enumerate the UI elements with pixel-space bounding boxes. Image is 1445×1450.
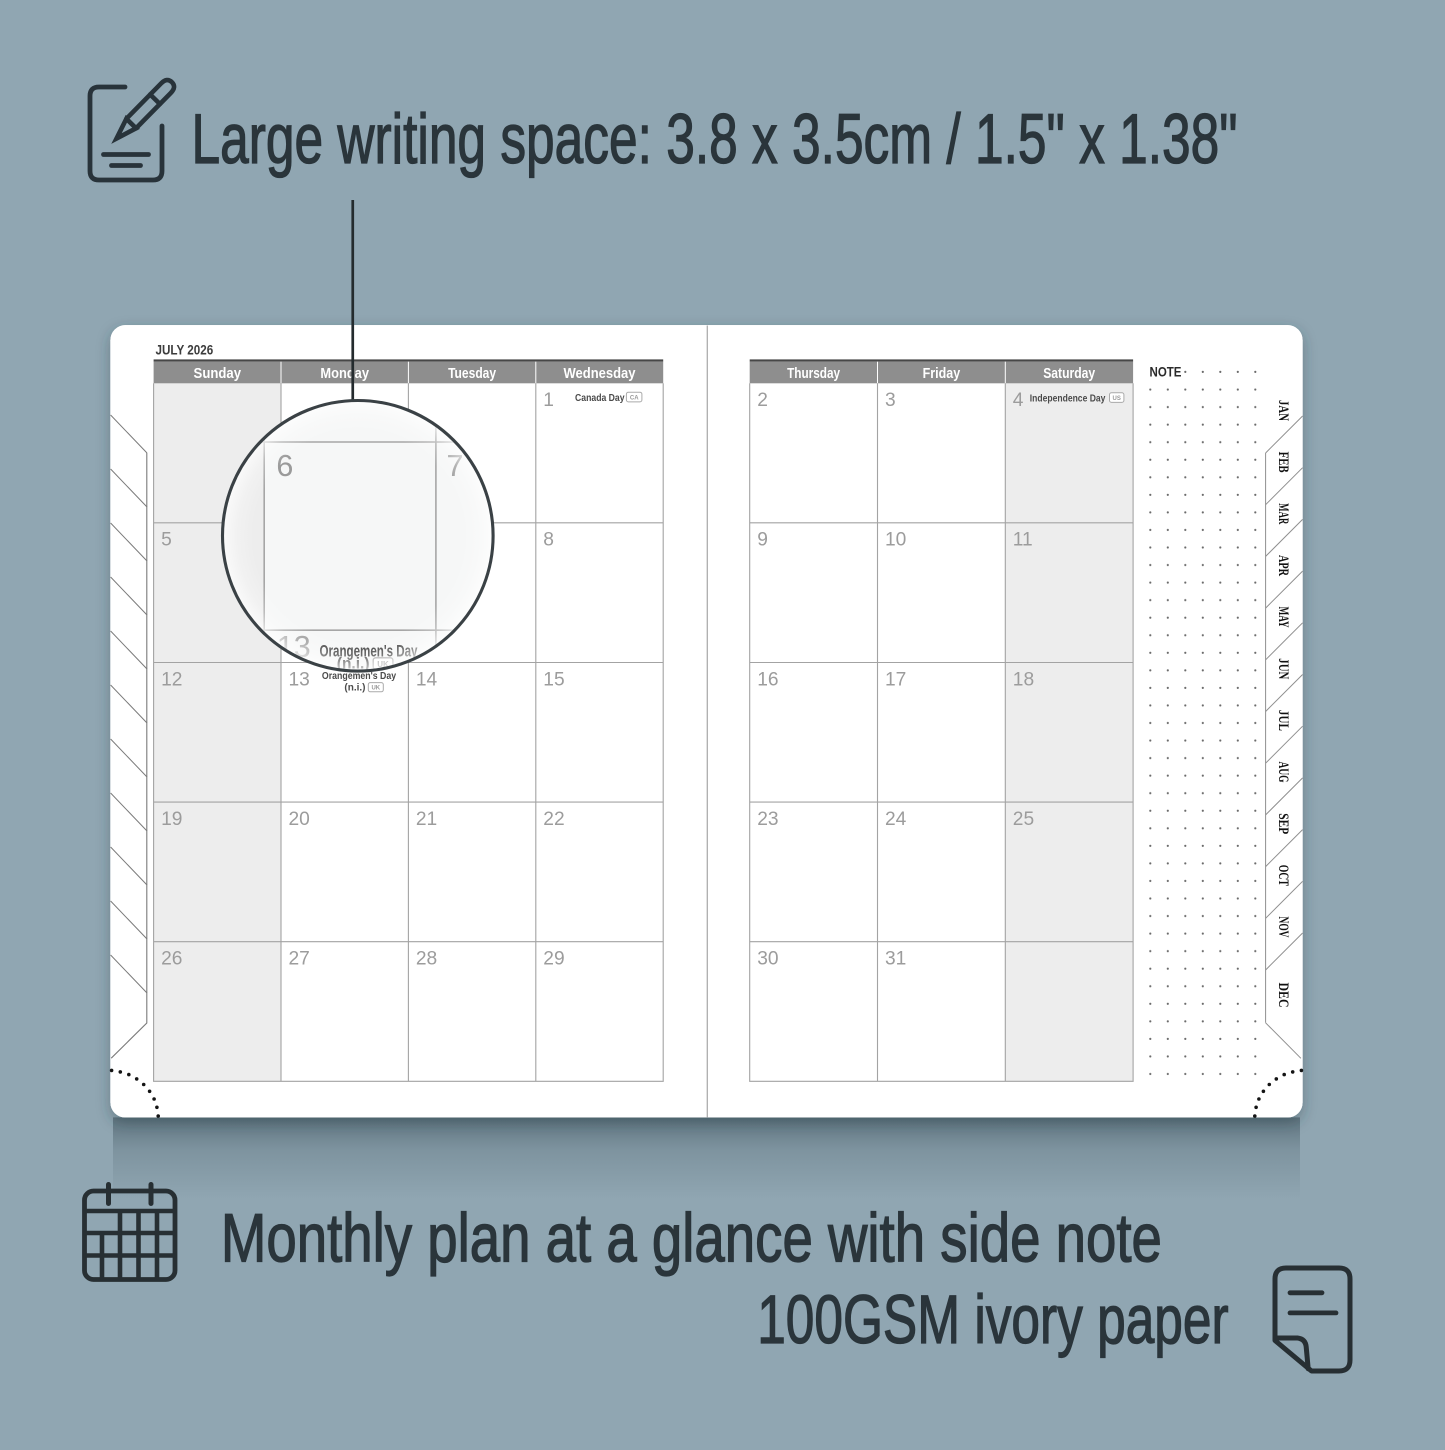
- svg-text:25: 25: [1013, 809, 1034, 830]
- svg-text:30: 30: [757, 949, 778, 970]
- svg-text:OCT: OCT: [1275, 865, 1291, 886]
- svg-text:28: 28: [416, 949, 437, 970]
- svg-text:20: 20: [289, 809, 310, 830]
- svg-text:10: 10: [885, 530, 906, 551]
- svg-text:JAN: JAN: [1275, 400, 1291, 421]
- svg-text:5: 5: [161, 530, 172, 551]
- svg-text:AUG: AUG: [1275, 762, 1291, 783]
- svg-text:Large writing space: 3.8 x 3.5: Large writing space: 3.8 x 3.5cm / 1.5" …: [192, 99, 1238, 178]
- svg-text:Tuesday: Tuesday: [448, 365, 497, 382]
- svg-text:Sunday: Sunday: [194, 365, 242, 382]
- svg-text:1: 1: [543, 390, 554, 411]
- svg-text:17: 17: [885, 669, 906, 690]
- svg-text:21: 21: [416, 809, 437, 830]
- svg-text:JUN: JUN: [1275, 658, 1291, 679]
- svg-text:3: 3: [885, 390, 896, 411]
- svg-text:24: 24: [885, 809, 907, 830]
- svg-text:NOTE: NOTE: [1150, 365, 1182, 380]
- svg-text:13: 13: [289, 669, 310, 690]
- svg-text:CA: CA: [630, 395, 639, 401]
- svg-text:12: 12: [161, 669, 182, 690]
- svg-text:NOV: NOV: [1275, 917, 1291, 938]
- svg-text:FEB: FEB: [1275, 452, 1291, 473]
- svg-text:14: 14: [416, 669, 438, 690]
- svg-text:23: 23: [757, 809, 778, 830]
- svg-text:16: 16: [757, 669, 778, 690]
- svg-text:Friday: Friday: [923, 365, 961, 382]
- svg-text:Canada Day: Canada Day: [575, 393, 625, 404]
- svg-text:8: 8: [543, 530, 554, 551]
- svg-text:(n.i.): (n.i.): [344, 683, 365, 694]
- svg-text:Wednesday: Wednesday: [564, 365, 637, 382]
- svg-text:JULY 2026: JULY 2026: [156, 342, 214, 358]
- svg-text:18: 18: [1013, 669, 1034, 690]
- svg-text:Saturday: Saturday: [1043, 365, 1096, 382]
- svg-text:27: 27: [289, 949, 310, 970]
- svg-text:29: 29: [543, 949, 564, 970]
- svg-text:SEP: SEP: [1275, 813, 1291, 834]
- svg-text:JUL: JUL: [1275, 710, 1291, 731]
- svg-text:MAR: MAR: [1275, 503, 1291, 524]
- svg-text:9: 9: [757, 530, 768, 551]
- svg-text:Thursday: Thursday: [787, 365, 841, 382]
- svg-text:Monthly plan at a glance with: Monthly plan at a glance with side note: [221, 1199, 1162, 1276]
- svg-text:100GSM ivory paper: 100GSM ivory paper: [757, 1281, 1228, 1358]
- svg-text:31: 31: [885, 949, 906, 970]
- svg-text:2: 2: [757, 390, 768, 411]
- svg-text:Independence Day: Independence Day: [1030, 393, 1106, 404]
- svg-text:Monday: Monday: [320, 365, 369, 382]
- svg-text:MAY: MAY: [1275, 607, 1291, 628]
- svg-text:4: 4: [1013, 390, 1024, 411]
- svg-text:UK: UK: [371, 686, 380, 692]
- svg-text:APR: APR: [1275, 555, 1291, 576]
- svg-text:26: 26: [161, 949, 182, 970]
- svg-text:11: 11: [1013, 530, 1033, 551]
- svg-text:US: US: [1113, 396, 1121, 402]
- svg-text:19: 19: [161, 809, 182, 830]
- svg-text:15: 15: [543, 669, 564, 690]
- svg-text:DEC: DEC: [1275, 983, 1291, 1008]
- svg-text:22: 22: [543, 809, 564, 830]
